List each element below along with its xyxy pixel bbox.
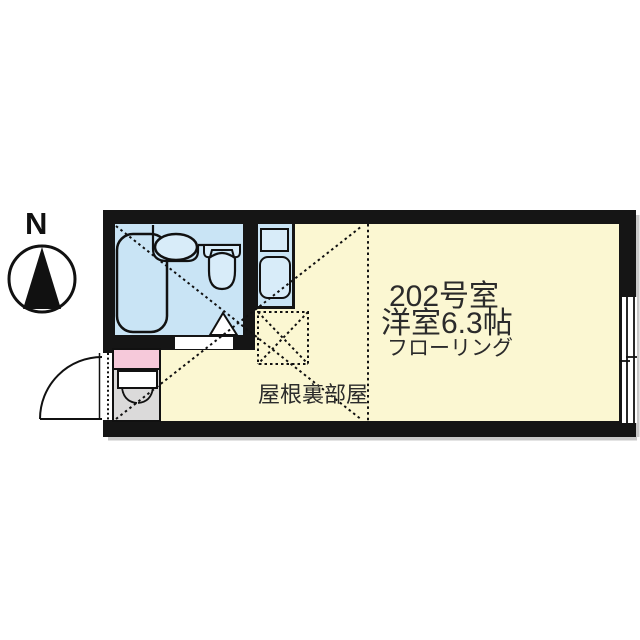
- entrance-cabinet: [113, 349, 160, 369]
- compass-north-label: N: [25, 208, 47, 239]
- floorplan-drawing: [0, 0, 640, 640]
- attic-room-label: 屋根裏部屋: [258, 384, 368, 406]
- sink-icon: [155, 234, 197, 260]
- floorplan-page: N 202号室 洋室6.3帖 フローリング 屋根裏部屋: [0, 0, 640, 640]
- room-size-label: 洋室6.3帖: [381, 309, 513, 339]
- compass-icon: [9, 246, 75, 312]
- kitchen-unit-icon: [255, 221, 295, 309]
- entrance-area: [40, 349, 160, 421]
- flooring-label: フローリング: [387, 338, 513, 359]
- entrance-door-arc: [40, 357, 102, 419]
- bathroom-unit: [103, 210, 255, 350]
- bathroom-door-opening: [175, 337, 233, 349]
